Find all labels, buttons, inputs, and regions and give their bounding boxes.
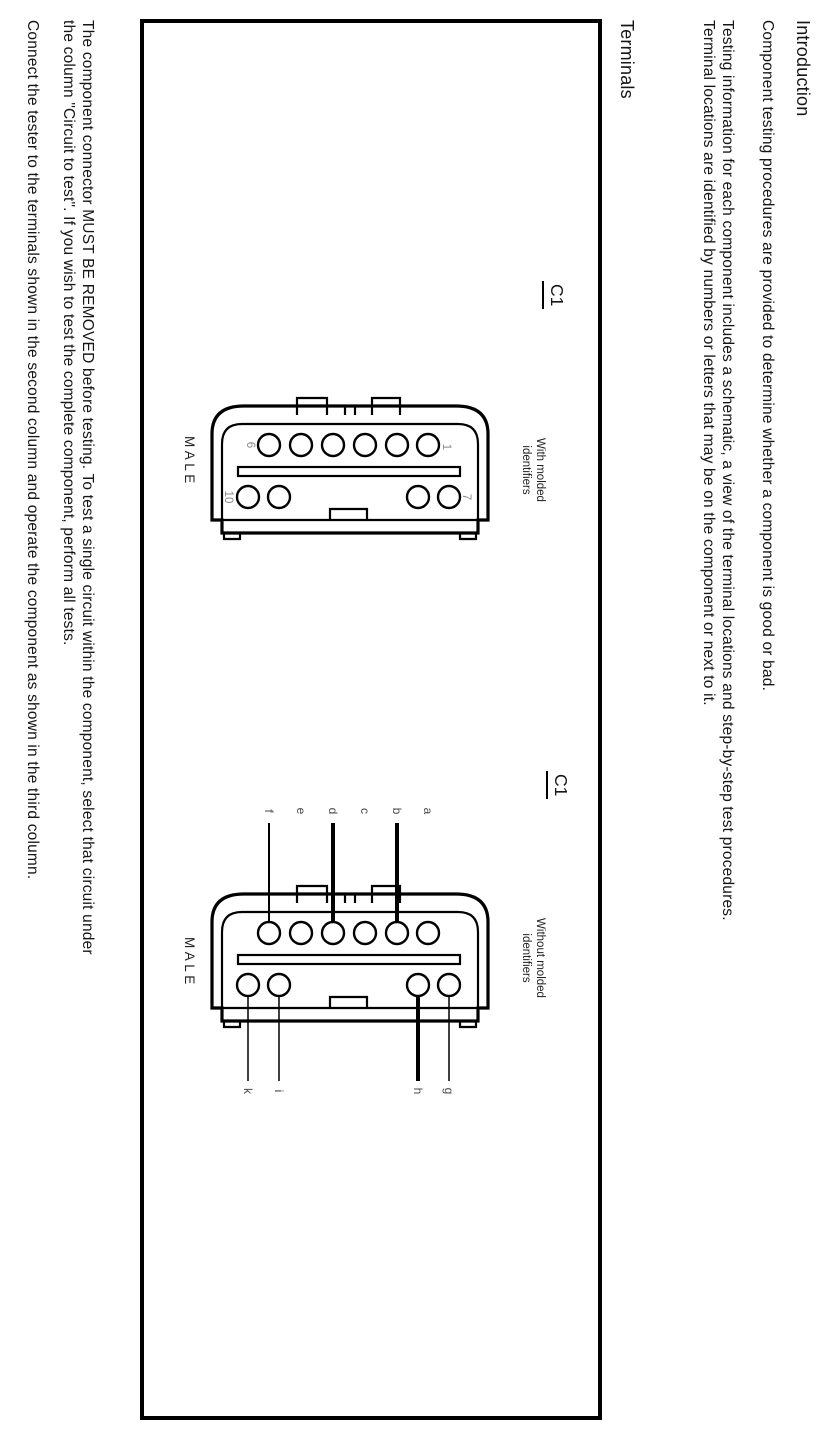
terminal-letter-f: f [262,809,276,813]
terminal-letter-e: e [294,808,308,815]
connector1-caption: With molded identifiers [519,405,547,535]
connector2-shell [212,886,488,1027]
terminal-letter-h: h [411,1088,425,1095]
rotated-document-content: Introduction Component testing procedure… [0,0,824,1448]
top-terminal-letters: f e d c b a [262,808,435,815]
terminal-letter-a: a [421,808,435,815]
connector2-diagram: f e d c b a k i h g [200,790,500,1100]
intro-heading: Introduction [792,20,813,116]
connector2-diagram-wrapper: f e d c b a k i h g [200,790,500,1100]
paragraph-connect-tester: Connect the tester to the terminals show… [23,20,41,879]
connector2-caption: Without molded identifiers [519,893,547,1023]
terminal-letter-c: c [358,808,372,814]
pin-number-7: 7 [460,494,472,500]
connector1-diagram-wrapper: 6 1 10 7 [200,370,500,560]
connector2-caption-line2: identifiers [519,893,533,1023]
scanned-document-page: Introduction Component testing procedure… [0,0,824,1448]
terminal-letter-b: b [390,808,404,815]
terminals-figure-frame [140,19,602,1420]
terminal-letter-d: d [326,808,340,815]
terminal-letter-k: k [241,1088,255,1095]
connector2-caption-line1: Without molded [533,893,547,1023]
connector2-label: C1 [546,771,571,799]
terminals-heading: Terminals [616,20,637,99]
terminal-letter-i: i [272,1090,286,1093]
connector1-diagram: 6 1 10 7 [200,370,500,560]
connector1-caption-line1: With molded [533,405,547,535]
connector1-caption-line2: identifiers [519,405,533,535]
keyway-slot [238,955,460,964]
paragraph-component-testing: Component testing procedures are provide… [758,20,776,691]
paragraph-must-be-removed-line1: The component connector MUST BE REMOVED … [78,20,96,955]
paragraph-must-be-removed-line2: the column "Circuit to test". If you wis… [59,20,77,646]
connector1-gender-label: MALE [182,436,197,487]
pin-number-1: 1 [440,444,452,450]
connector1-label: C1 [542,281,567,309]
pin-number-6: 6 [244,442,256,448]
bottom-terminal-letters: k i h g [241,1088,456,1095]
paragraph-terminal-locations: Terminal locations are identified by num… [699,20,717,706]
terminal-letter-g: g [442,1088,456,1095]
pin-number-10: 10 [222,491,234,504]
paragraph-testing-information: Testing information for each component i… [718,20,736,921]
connector2-gender-label: MALE [182,937,197,988]
keyway-slot [238,467,460,476]
connector1-shell [212,398,488,539]
